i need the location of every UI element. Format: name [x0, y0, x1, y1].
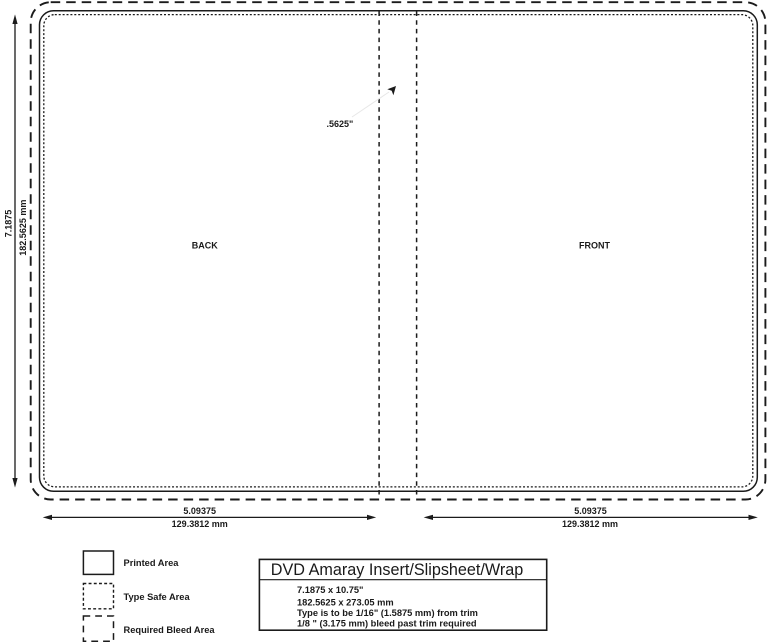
svg-text:182.5625 mm: 182.5625 mm — [18, 200, 28, 256]
svg-text:Type is to be 1/16" (1.5875 mm: Type is to be 1/16" (1.5875 mm) from tri… — [297, 608, 478, 618]
svg-text:Printed Area: Printed Area — [124, 558, 180, 568]
svg-text:Type Safe Area: Type Safe Area — [124, 592, 191, 602]
svg-text:5.09375: 5.09375 — [183, 506, 216, 516]
svg-text:182.5625 x 273.05 mm: 182.5625 x 273.05 mm — [297, 598, 394, 608]
svg-text:BACK: BACK — [192, 240, 218, 250]
svg-text:FRONT: FRONT — [579, 240, 610, 250]
svg-text:7.1875 x 10.75": 7.1875 x 10.75" — [297, 585, 363, 595]
svg-text:DVD Amaray Insert/Slipsheet/Wr: DVD Amaray Insert/Slipsheet/Wrap — [271, 561, 524, 579]
svg-text:Required Bleed Area: Required Bleed Area — [124, 625, 216, 635]
svg-text:5.09375: 5.09375 — [574, 506, 607, 516]
svg-text:7.1875: 7.1875 — [3, 210, 13, 238]
svg-text:.5625": .5625" — [327, 119, 354, 129]
svg-text:1/8 " (3.175 mm) bleed past tr: 1/8 " (3.175 mm) bleed past trim require… — [297, 619, 477, 629]
svg-text:129.3812 mm: 129.3812 mm — [172, 519, 228, 529]
svg-text:129.3812 mm: 129.3812 mm — [562, 519, 618, 529]
